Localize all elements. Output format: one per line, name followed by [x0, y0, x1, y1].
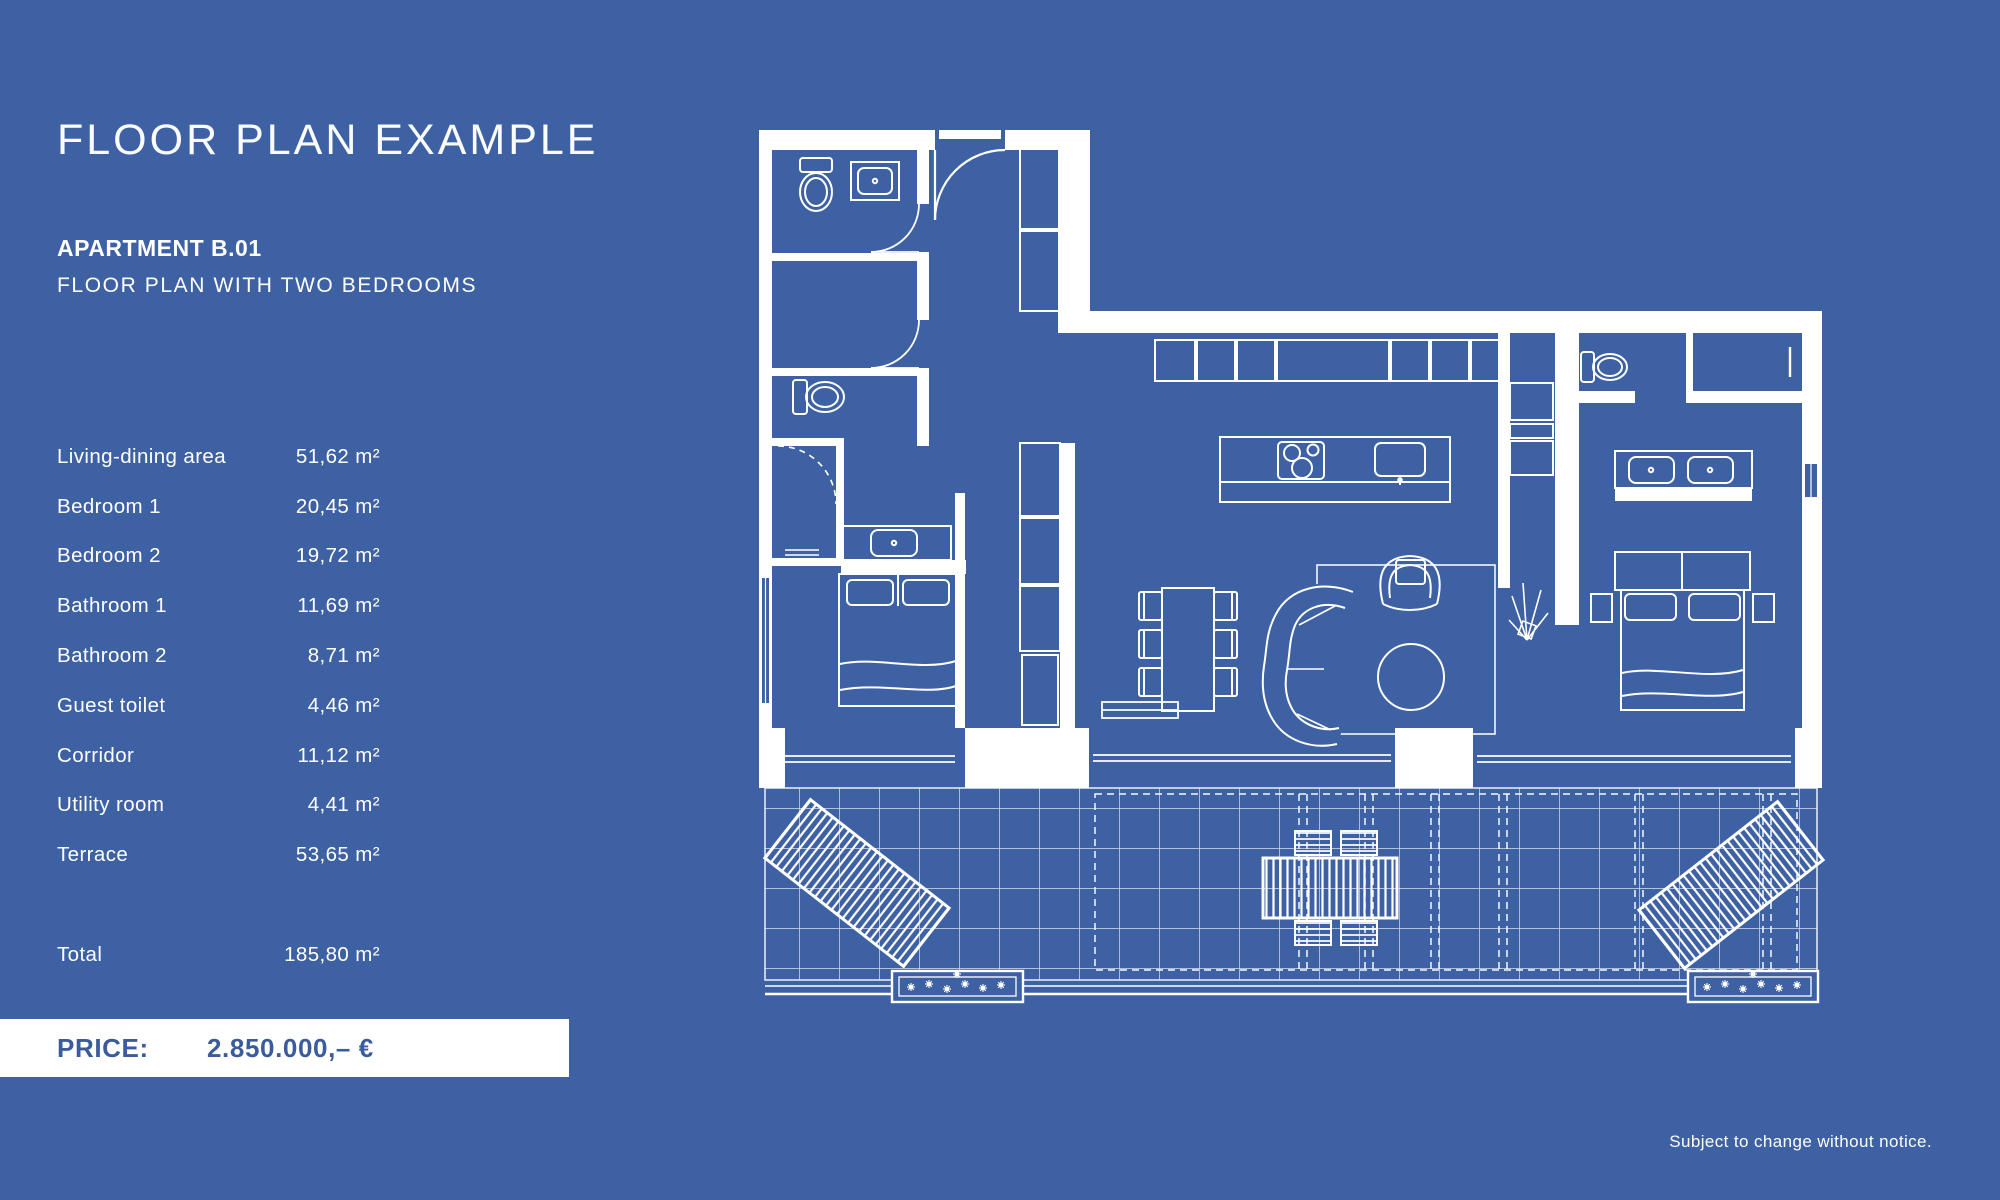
- shelf-niche-icon: [1510, 383, 1553, 475]
- brochure-page: { "page": { "title": "FLOOR PLAN EXAMPLE…: [0, 0, 2000, 1200]
- area-table: Living-dining area 51,62 m² Bedroom 1 20…: [57, 432, 380, 880]
- area-row: Utility room 4,41 m²: [57, 781, 380, 831]
- area-value: 51,62 m²: [296, 445, 380, 469]
- floor-plan: [759, 128, 1825, 1010]
- bathroom1-toilet-icon: [793, 380, 844, 414]
- planter-right-icon: [1688, 970, 1818, 1002]
- area-value: 4,41 m²: [308, 793, 380, 817]
- area-row: Bathroom 2 8,71 m²: [57, 631, 380, 681]
- area-total-row: Total 185,80 m²: [57, 930, 380, 980]
- area-label: Guest toilet: [57, 694, 166, 718]
- area-label: Bedroom 1: [57, 495, 161, 519]
- area-row: Living-dining area 51,62 m²: [57, 432, 380, 482]
- area-label: Bathroom 2: [57, 644, 167, 668]
- bathroom2-toilet-icon: [1581, 352, 1627, 382]
- utility-door-icon: [871, 320, 919, 368]
- price-label: PRICE:: [57, 1033, 207, 1064]
- wardrobe-icon: [1020, 148, 1060, 725]
- area-value: 11,12 m²: [297, 744, 380, 768]
- shelf-icon: [785, 550, 819, 555]
- area-value: 20,45 m²: [296, 495, 380, 519]
- entrance-door-icon: [935, 150, 1005, 220]
- guest-sink-icon: [851, 162, 899, 200]
- plant-icon: [1509, 583, 1548, 640]
- area-label: Utility room: [57, 793, 164, 817]
- area-label: Living-dining area: [57, 445, 226, 469]
- cooktop-icon: [1278, 442, 1324, 479]
- double-vanity-icon: [1615, 451, 1752, 488]
- bed-2-icon: [1591, 552, 1774, 710]
- dining-table-icon: [1139, 588, 1237, 711]
- area-row: Bedroom 2 19,72 m²: [57, 532, 380, 582]
- kitchen-island-icon: [1220, 437, 1450, 502]
- kitchen-sink-icon: [1375, 443, 1425, 485]
- area-label: Bathroom 1: [57, 594, 167, 618]
- total-value: 185,80 m²: [284, 943, 380, 967]
- area-value: 53,65 m²: [296, 843, 380, 867]
- area-value: 19,72 m²: [296, 544, 380, 568]
- bed-1-icon: [839, 574, 957, 706]
- area-value: 11,69 m²: [297, 594, 380, 618]
- area-value: 8,71 m²: [308, 644, 380, 668]
- floor-plan-drawing: [759, 128, 1825, 1010]
- area-label: Bedroom 2: [57, 544, 161, 568]
- area-row: Corridor 11,12 m²: [57, 731, 380, 781]
- total-label: Total: [57, 943, 102, 967]
- sliding-door-icon: [785, 755, 1791, 762]
- area-row: Guest toilet 4,46 m²: [57, 681, 380, 731]
- price-value: 2.850.000,– €: [207, 1033, 374, 1064]
- area-row: Bedroom 1 20,45 m²: [57, 482, 380, 532]
- sofa-icon: [1261, 584, 1353, 748]
- footer-note: Subject to change without notice.: [1669, 1132, 1932, 1152]
- page-title: FLOOR PLAN EXAMPLE: [57, 116, 599, 165]
- area-value: 4,46 m²: [308, 694, 380, 718]
- armchair-icon: [1380, 556, 1439, 610]
- tv-bench-icon: [1102, 702, 1178, 718]
- kitchen-cabinets-icon: [1155, 340, 1509, 381]
- planter-left-icon: [892, 970, 1023, 1002]
- apartment-description: FLOOR PLAN WITH TWO BEDROOMS: [57, 274, 477, 298]
- area-label: Corridor: [57, 744, 134, 768]
- vanity-sink-icon: [841, 526, 951, 560]
- price-bar: PRICE: 2.850.000,– €: [0, 1019, 569, 1077]
- coffee-table-icon: [1378, 644, 1444, 710]
- area-label: Terrace: [57, 843, 128, 867]
- bedroom1-door-dashed-icon: [778, 446, 836, 504]
- area-row: Terrace 53,65 m²: [57, 830, 380, 880]
- guest-toilet-door-icon: [871, 204, 919, 252]
- apartment-name: APARTMENT B.01: [57, 235, 262, 262]
- guest-toilet-icon: [800, 158, 832, 211]
- area-row: Bathroom 1 11,69 m²: [57, 581, 380, 631]
